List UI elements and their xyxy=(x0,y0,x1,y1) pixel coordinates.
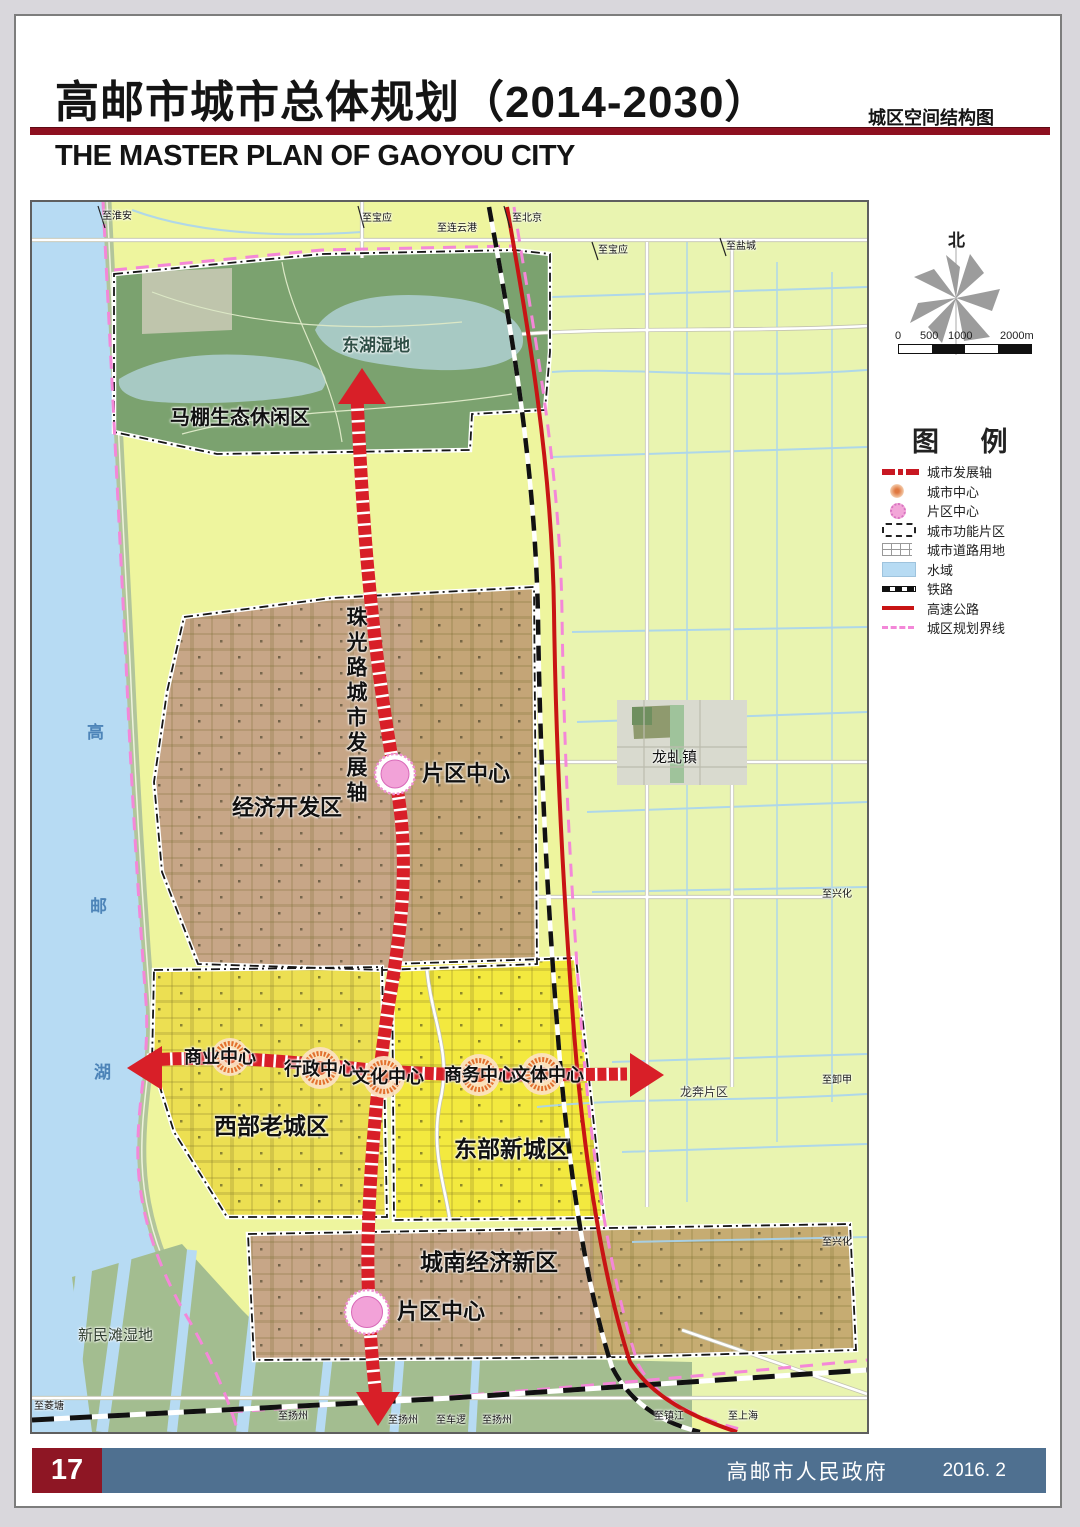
legend-label: 城市道路用地 xyxy=(927,540,1005,559)
edge-label-xinghua-1: 至兴化 xyxy=(822,890,852,901)
label-longqiu-town: 龙虬镇 xyxy=(652,750,697,766)
edge-label-yangzhou-3: 至扬州 xyxy=(482,1416,512,1427)
edge-label-cheluo: 至车逻 xyxy=(436,1416,466,1427)
legend-item-expressway: 高速公路 xyxy=(882,599,1052,619)
legend-item-development-axis: 城市发展轴 xyxy=(882,462,1052,482)
label-district-center-2: 片区中心 xyxy=(397,1300,485,1323)
page-number: 17 xyxy=(32,1448,102,1493)
legend: 城市发展轴 城市中心 片区中心 城市功能片区 城市道路用地 水域 铁路 高速公 xyxy=(882,462,1052,638)
header-divider xyxy=(30,127,1050,135)
expressway-icon xyxy=(882,606,920,610)
label-econ-dev-zone: 经济开发区 xyxy=(232,796,342,819)
label-commercial-center: 商业中心 xyxy=(184,1048,256,1067)
legend-label: 城区规划界线 xyxy=(927,618,1005,637)
edge-label-beijing: 至北京 xyxy=(512,214,542,225)
district-center-icon xyxy=(882,503,920,519)
label-lake-char-3: 湖 xyxy=(94,1064,111,1082)
edge-label-yancheng: 至盐城 xyxy=(726,242,756,253)
edge-label-xinghua-2: 至兴化 xyxy=(822,1238,852,1249)
legend-item-district-center: 片区中心 xyxy=(882,501,1052,521)
urban-road-land-icon xyxy=(882,543,920,556)
label-sports-center: 文体中心 xyxy=(512,1066,584,1085)
legend-item-city-center: 城市中心 xyxy=(882,482,1052,502)
label-lake-char-1: 高 xyxy=(87,724,104,742)
legend-label: 铁路 xyxy=(927,579,953,598)
edge-label-baoying-2: 至宝应 xyxy=(598,246,628,257)
legend-label: 城市发展轴 xyxy=(927,462,992,481)
edge-label-zhenjiang: 至镇江 xyxy=(654,1412,684,1423)
legend-label: 片区中心 xyxy=(927,501,979,520)
legend-label: 高速公路 xyxy=(927,599,979,618)
legend-item-railway: 铁路 xyxy=(882,579,1052,599)
label-longben-district: 龙奔片区 xyxy=(680,1086,728,1099)
label-admin-center: 行政中心 xyxy=(284,1060,356,1079)
legend-title: 图 例 xyxy=(912,420,1008,459)
south-zone-grid xyxy=(248,1224,856,1360)
publication-date: 2016. 2 xyxy=(943,1460,1006,1482)
planning-boundary-icon xyxy=(882,626,920,629)
city-center-icon xyxy=(882,484,920,498)
publisher: 高邮市人民政府 xyxy=(727,1456,888,1486)
edge-label-huaian: 至淮安 xyxy=(102,212,132,223)
edge-label-lianyungang: 至连云港 xyxy=(437,224,477,235)
legend-label: 城市中心 xyxy=(927,482,979,501)
label-west-old-town: 西部老城区 xyxy=(214,1114,329,1138)
legend-label: 水域 xyxy=(927,560,953,579)
label-south-econ-district: 城南经济新区 xyxy=(420,1250,558,1274)
label-culture-center: 文化中心 xyxy=(352,1068,424,1087)
scale-tick-2000: 2000m xyxy=(1000,330,1034,342)
edge-label-yangzhou-1: 至扬州 xyxy=(278,1412,308,1423)
west-zone-grid xyxy=(152,967,387,1217)
railway-icon xyxy=(882,586,920,592)
label-eco-leisure-zone: 马棚生态休闲区 xyxy=(170,408,310,429)
water-area-icon xyxy=(882,562,920,577)
legend-item-functional-district: 城市功能片区 xyxy=(882,521,1052,541)
label-business-center: 商务中心 xyxy=(444,1066,516,1085)
scalebar xyxy=(898,344,1032,354)
footer-credits: 高邮市人民政府 2016. 2 xyxy=(727,1456,1046,1486)
eco-built-patch xyxy=(142,268,232,334)
edge-label-shanghai: 至上海 xyxy=(728,1412,758,1423)
label-xinmin-wetland: 新民滩湿地 xyxy=(78,1328,153,1344)
plan-sheet: 高邮市城市总体规划（2014-2030） 城区空间结构图 THE MASTER … xyxy=(0,0,1080,1527)
label-zhuguang-axis: 珠光路城市发展轴 xyxy=(344,606,366,796)
scale-tick-0: 0 xyxy=(895,330,901,342)
edge-label-xiejia: 至卸甲 xyxy=(822,1076,852,1087)
legend-item-planning-boundary: 城区规划界线 xyxy=(882,618,1052,638)
legend-item-urban-road-land: 城市道路用地 xyxy=(882,540,1052,560)
label-district-center-1: 片区中心 xyxy=(422,762,510,785)
edge-label-baoying-1: 至宝应 xyxy=(362,214,392,225)
development-axis-icon xyxy=(882,469,920,475)
legend-item-water-area: 水域 xyxy=(882,560,1052,580)
edge-label-lingtang: 至菱塘 xyxy=(34,1402,64,1413)
scale-tick-1000: 1000 xyxy=(948,330,972,342)
functional-district-icon xyxy=(882,523,920,537)
label-east-new-town: 东部新城区 xyxy=(454,1137,569,1161)
map-canvas xyxy=(32,202,867,1432)
edge-label-yangzhou-2: 至扬州 xyxy=(388,1416,418,1427)
longqiu-town-block xyxy=(617,700,747,785)
label-east-lake-wetland: 东湖湿地 xyxy=(342,337,410,355)
scale-tick-500: 500 xyxy=(920,330,938,342)
legend-label: 城市功能片区 xyxy=(927,521,1005,540)
label-lake-char-2: 邮 xyxy=(90,898,107,916)
page-title-english: THE MASTER PLAN OF GAOYOU CITY xyxy=(55,140,575,173)
footer-bar: 17 高邮市人民政府 2016. 2 xyxy=(32,1448,1046,1493)
page-title: 高邮市城市总体规划（2014-2030） xyxy=(55,66,769,130)
master-plan-map: 东湖湿地 马棚生态休闲区 珠光路城市发展轴 片区中心 经济开发区 龙虬镇 龙奔片… xyxy=(30,200,869,1434)
